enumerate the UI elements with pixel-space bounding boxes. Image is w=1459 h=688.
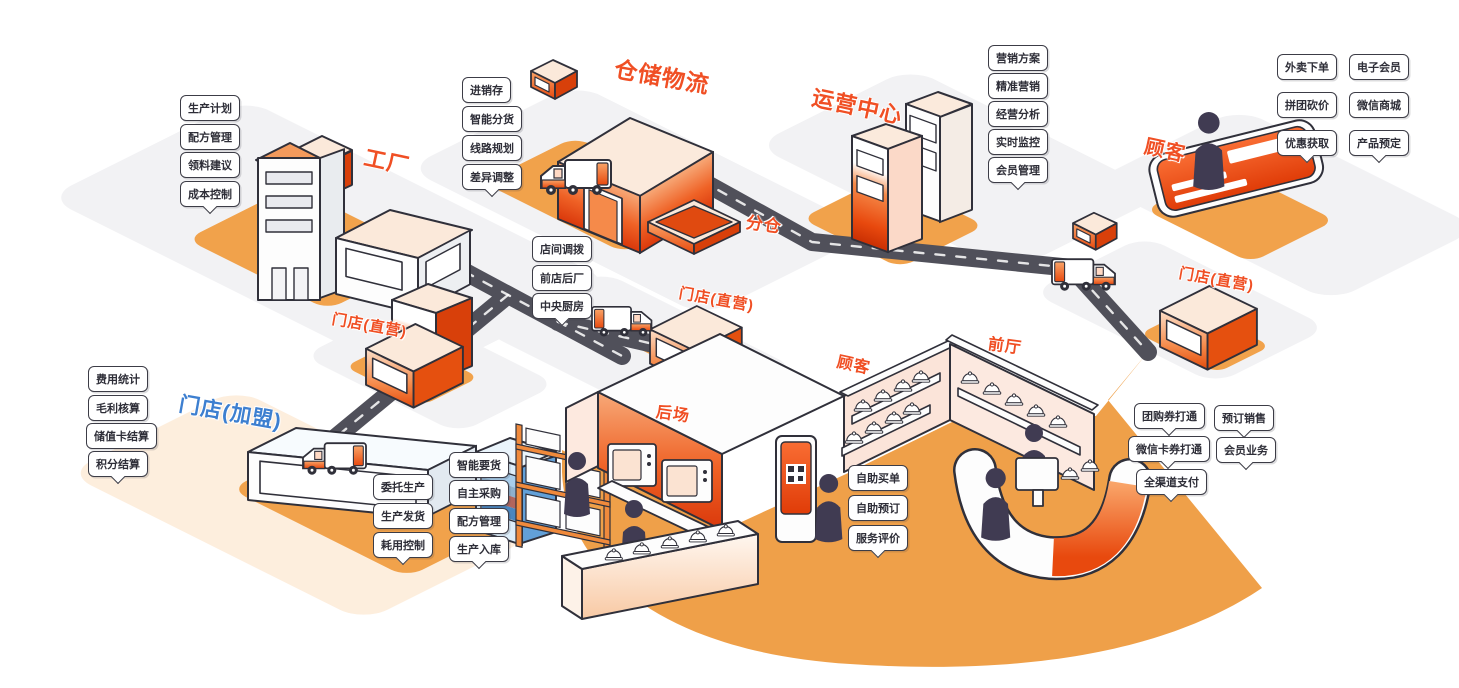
callout-item: 预订销售 xyxy=(1214,405,1274,431)
callout-item: 储值卡结算 xyxy=(86,423,157,449)
callout-item: 差异调整 xyxy=(462,164,522,190)
callout-item: 营销方案 xyxy=(988,45,1048,71)
callout-item: 前店后厂 xyxy=(532,265,592,291)
callout-item: 进销存 xyxy=(462,77,511,103)
callout-item: 拼团砍价 xyxy=(1277,92,1337,118)
callout-item: 配方管理 xyxy=(449,508,509,534)
callout-item: 微信卡券打通 xyxy=(1128,436,1210,462)
callout-item: 领料建议 xyxy=(180,152,240,178)
callout-item: 会员业务 xyxy=(1216,437,1276,463)
callout-item: 耗用控制 xyxy=(373,532,433,558)
callout-item: 配方管理 xyxy=(180,124,240,150)
callout-item: 生产计划 xyxy=(180,95,240,121)
isometric-diagram: 工厂 仓储物流 分仓 运营中心 顾客 门店(直营) 门店(直营) 门店(直营) … xyxy=(0,0,1459,688)
callout-item: 费用统计 xyxy=(88,366,148,392)
callout-item: 智能要货 xyxy=(449,452,509,478)
callout-item: 成本控制 xyxy=(180,181,240,207)
qr-kiosk xyxy=(776,436,816,542)
callout-item: 外卖下单 xyxy=(1277,54,1337,80)
callout-item: 生产发货 xyxy=(373,503,433,529)
callout-item: 毛利核算 xyxy=(88,395,148,421)
callout-item: 电子会员 xyxy=(1349,54,1409,80)
wall xyxy=(566,392,598,482)
callout-item: 会员管理 xyxy=(988,157,1048,183)
callout-item: 生产入库 xyxy=(449,536,509,562)
callout-item: 服务评价 xyxy=(848,525,908,551)
callout-item: 中央厨房 xyxy=(532,293,592,319)
callout-item: 经营分析 xyxy=(988,101,1048,127)
callout-item: 实时监控 xyxy=(988,129,1048,155)
callout-item: 微信商城 xyxy=(1349,92,1409,118)
callout-item: 优惠获取 xyxy=(1277,130,1337,156)
callout-item: 自主采购 xyxy=(449,480,509,506)
callout-item: 线路规划 xyxy=(462,135,522,161)
callout-item: 积分结算 xyxy=(88,451,148,477)
callout-item: 智能分货 xyxy=(462,106,522,132)
callout-item: 自助买单 xyxy=(848,465,908,491)
oven xyxy=(608,444,656,486)
area-title-sub-warehouse: 分仓 xyxy=(745,208,784,238)
callout-item: 精准营销 xyxy=(988,73,1048,99)
callout-item: 团购券打通 xyxy=(1134,403,1205,429)
callout-item: 全渠道支付 xyxy=(1136,469,1207,495)
oven xyxy=(662,460,712,502)
area-title-front-hall: 前厅 xyxy=(987,330,1024,359)
area-title-back-area: 后场 xyxy=(655,398,692,427)
callout-item: 委托生产 xyxy=(373,474,433,500)
callout-item: 自助预订 xyxy=(848,495,908,521)
callout-item: 产品预定 xyxy=(1349,130,1409,156)
callout-item: 店间调拨 xyxy=(532,236,592,262)
